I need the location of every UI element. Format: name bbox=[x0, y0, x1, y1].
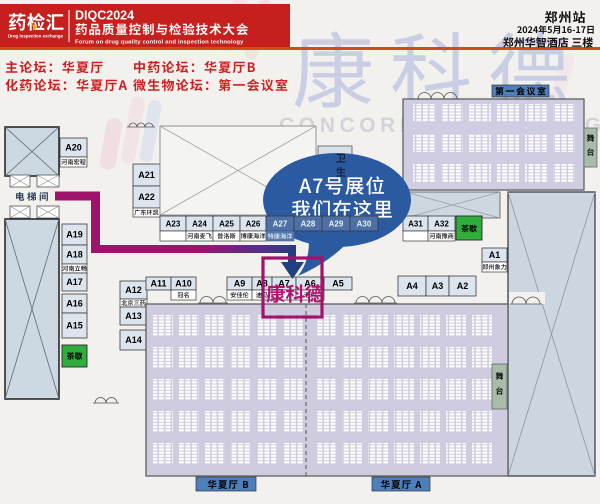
svg-text:A24: A24 bbox=[192, 219, 207, 228]
svg-text:A31: A31 bbox=[408, 219, 423, 228]
svg-text:A27: A27 bbox=[273, 219, 288, 228]
svg-text:A11: A11 bbox=[150, 279, 166, 289]
svg-text:Forum on drug quality control: Forum on drug quality control and inspec… bbox=[75, 40, 244, 46]
svg-text:A18: A18 bbox=[66, 250, 83, 260]
svg-text:A32: A32 bbox=[434, 219, 449, 228]
svg-text:A9: A9 bbox=[234, 279, 246, 289]
svg-text:A15: A15 bbox=[66, 321, 83, 331]
svg-text:A21: A21 bbox=[138, 170, 155, 180]
svg-text:A1: A1 bbox=[489, 250, 501, 260]
svg-text:A16: A16 bbox=[66, 299, 83, 309]
svg-text:A25: A25 bbox=[219, 219, 234, 228]
svg-text:A30: A30 bbox=[357, 219, 372, 228]
svg-text:A29: A29 bbox=[329, 219, 344, 228]
svg-text:A13: A13 bbox=[125, 311, 142, 321]
svg-text:A17: A17 bbox=[66, 277, 83, 287]
svg-text:A14: A14 bbox=[125, 335, 142, 345]
svg-text:A4: A4 bbox=[406, 281, 418, 291]
svg-text:A26: A26 bbox=[246, 219, 261, 228]
svg-text:A12: A12 bbox=[125, 285, 142, 295]
svg-text:A5: A5 bbox=[332, 279, 344, 289]
svg-text:A2: A2 bbox=[457, 281, 469, 291]
svg-text:A28: A28 bbox=[301, 219, 316, 228]
svg-text:A3: A3 bbox=[432, 281, 444, 291]
svg-text:A10: A10 bbox=[175, 279, 192, 289]
svg-text:Drug inspection exchange: Drug inspection exchange bbox=[8, 34, 63, 39]
svg-text:A22: A22 bbox=[138, 192, 155, 202]
svg-text:DIQC2024: DIQC2024 bbox=[75, 9, 134, 23]
svg-text:A23: A23 bbox=[166, 219, 181, 228]
svg-text:A20: A20 bbox=[65, 143, 82, 153]
svg-text:A19: A19 bbox=[66, 230, 83, 240]
